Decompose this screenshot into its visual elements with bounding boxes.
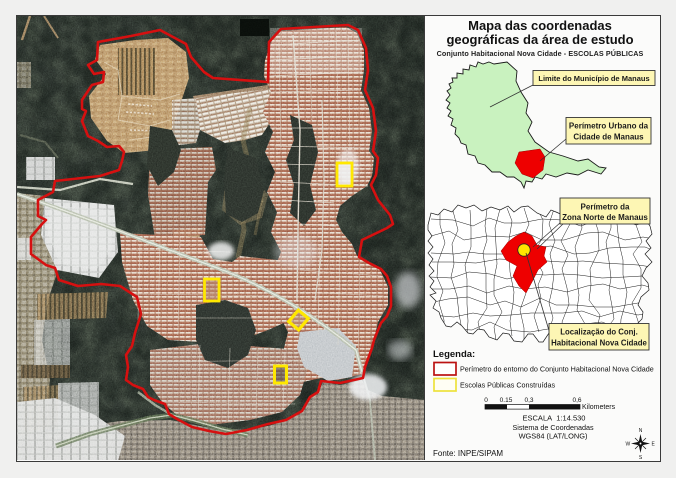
svg-text:S: S: [639, 455, 643, 460]
svg-text:Localização do Conj.: Localização do Conj.: [560, 328, 638, 337]
svg-text:W: W: [626, 442, 631, 448]
svg-text:Perímetro da: Perímetro da: [581, 203, 630, 212]
svg-text:Escolas Públicas Construídas: Escolas Públicas Construídas: [460, 381, 555, 390]
svg-text:Legenda:: Legenda:: [433, 349, 475, 360]
svg-text:Limite do Município de Manaus: Limite do Município de Manaus: [538, 74, 649, 83]
svg-text:N: N: [639, 428, 643, 434]
svg-text:Kilometers: Kilometers: [582, 404, 616, 411]
svg-text:ESCALA 1:14.530: ESCALA 1:14.530: [523, 414, 586, 423]
svg-text:0.15: 0.15: [500, 397, 513, 404]
svg-text:0,6: 0,6: [572, 397, 581, 404]
svg-text:E: E: [652, 442, 656, 448]
svg-text:Cidade de Manaus: Cidade de Manaus: [573, 133, 644, 142]
svg-text:0: 0: [484, 397, 488, 404]
svg-text:0,3: 0,3: [524, 397, 533, 404]
svg-text:Perímetro Urbano da: Perímetro Urbano da: [569, 122, 649, 131]
svg-text:Habitacional Nova Cidade: Habitacional Nova Cidade: [551, 339, 647, 348]
svg-text:Fonte: INPE/SIPAM: Fonte: INPE/SIPAM: [433, 449, 503, 458]
svg-text:WGS84 (LAT/LONG): WGS84 (LAT/LONG): [519, 432, 588, 441]
svg-text:Zona Norte de Manaus: Zona Norte de Manaus: [562, 213, 648, 222]
svg-text:Perímetro do entorno do Conjun: Perímetro do entorno do Conjunto Habitac…: [460, 365, 654, 374]
